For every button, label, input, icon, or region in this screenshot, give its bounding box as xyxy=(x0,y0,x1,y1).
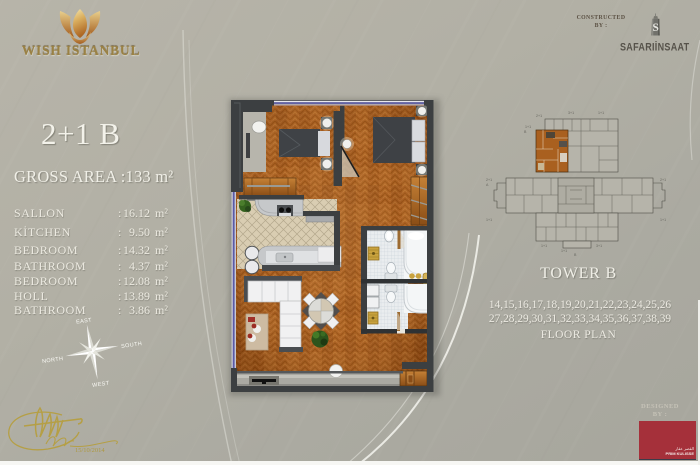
svg-text:SOUTH: SOUTH xyxy=(121,341,143,350)
svg-text:B: B xyxy=(524,130,527,134)
svg-text:WEST: WEST xyxy=(92,381,110,389)
svg-text:2+1: 2+1 xyxy=(660,178,666,182)
svg-text:1+1: 1+1 xyxy=(525,125,531,129)
svg-text:2+1: 2+1 xyxy=(536,114,542,118)
svg-text:B: B xyxy=(574,253,577,257)
svg-text:3+1: 3+1 xyxy=(568,111,574,115)
svg-text:NORTH: NORTH xyxy=(42,356,64,365)
svg-text:S: S xyxy=(653,22,659,34)
svg-text:A: A xyxy=(486,183,489,187)
svg-text:3+1: 3+1 xyxy=(596,244,602,248)
svg-text:15/10/2014: 15/10/2014 xyxy=(75,447,105,454)
svg-text:1+1: 1+1 xyxy=(660,218,666,222)
svg-text:2+1: 2+1 xyxy=(486,178,492,182)
svg-text:1+1: 1+1 xyxy=(486,218,492,222)
svg-text:1+1: 1+1 xyxy=(598,111,604,115)
svg-text:1+1: 1+1 xyxy=(541,244,547,248)
svg-text:1+1: 1+1 xyxy=(561,249,567,253)
svg-text:EAST: EAST xyxy=(76,317,93,325)
